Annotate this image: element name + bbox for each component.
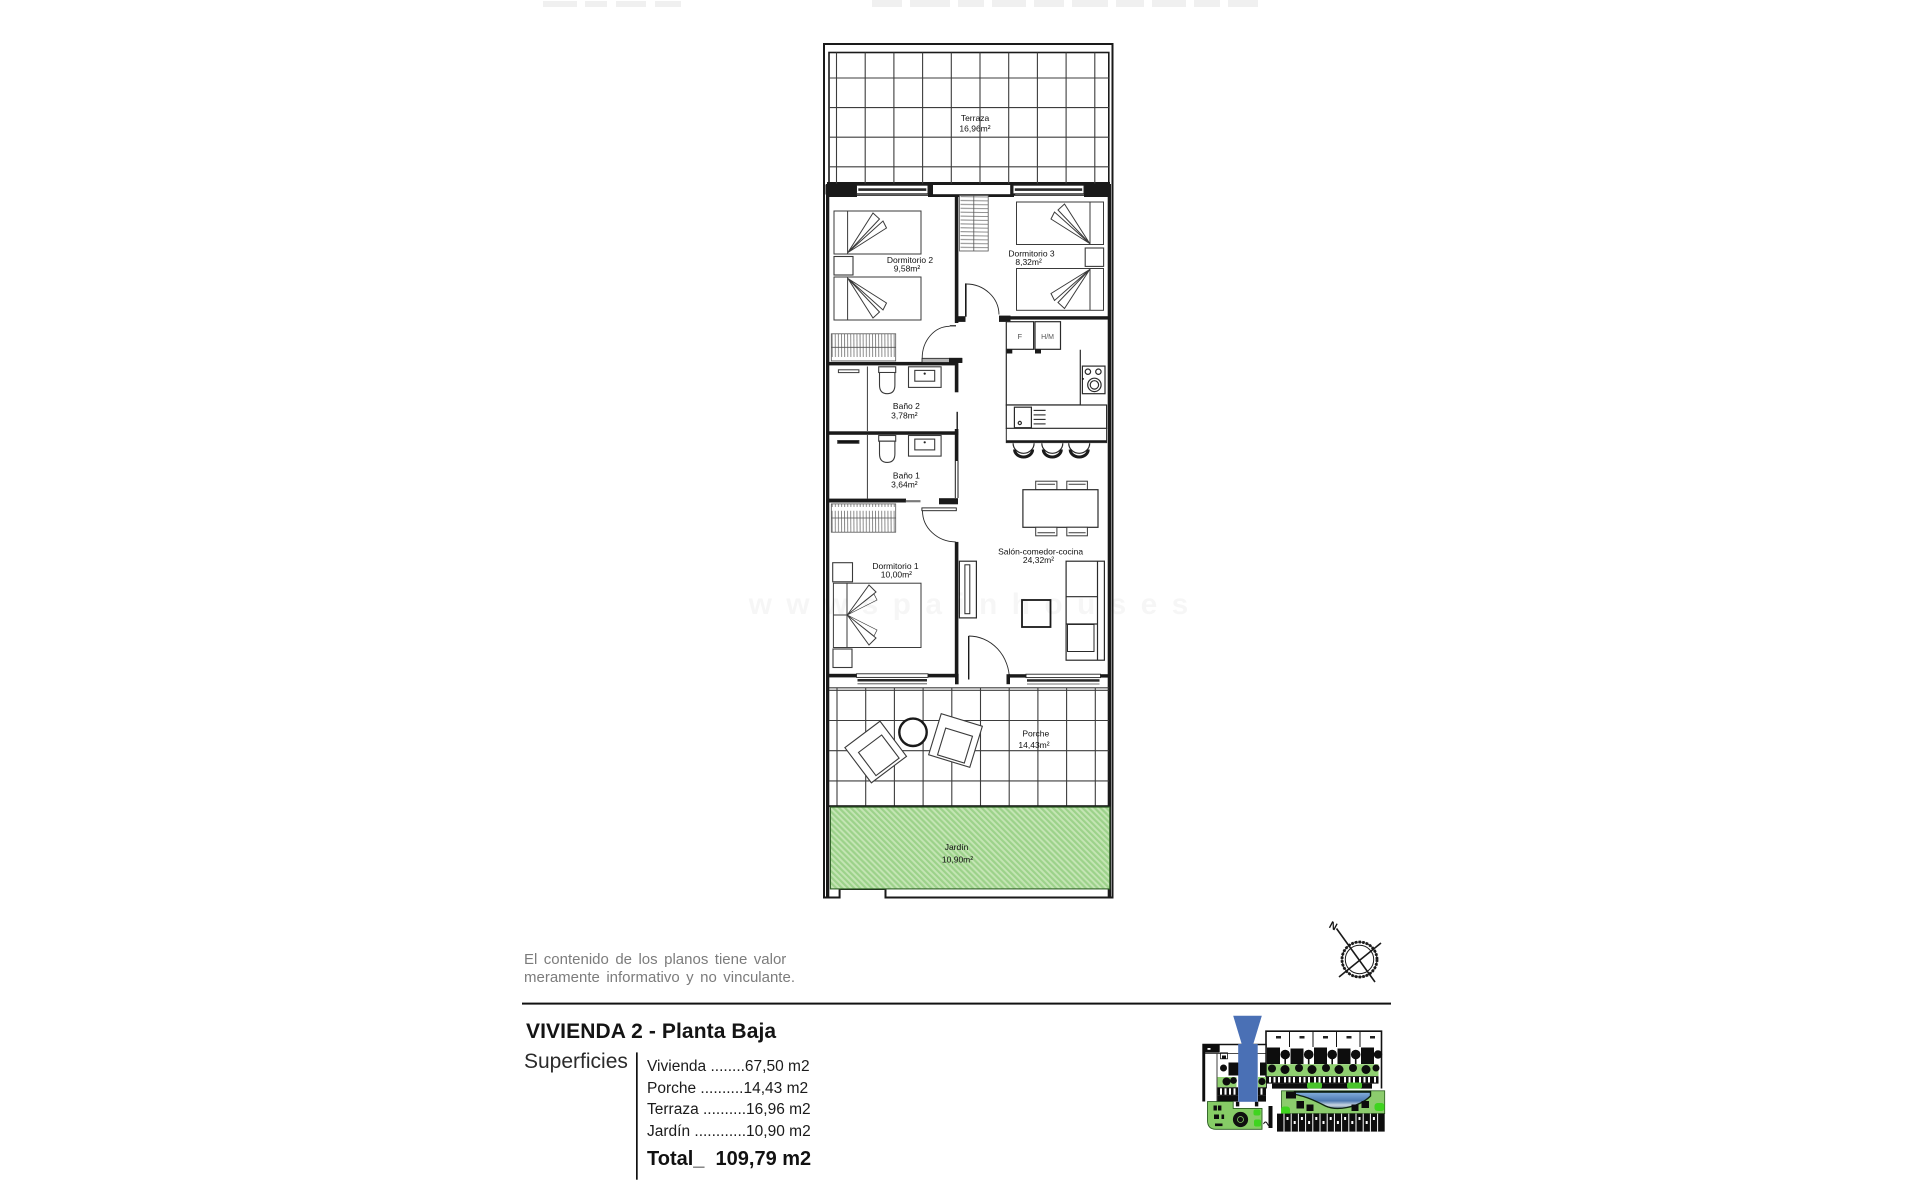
svg-text:w w w s p a i n h o u s e s: w w w s p a i n h o u s e s — [748, 588, 1192, 621]
svg-text:Terraza: Terraza — [961, 113, 990, 123]
svg-text:N: N — [1327, 919, 1339, 933]
svg-text:10,00m²: 10,00m² — [881, 570, 912, 580]
svg-text:Porche: Porche — [1022, 729, 1049, 739]
svg-text:H/M: H/M — [1041, 334, 1054, 341]
svg-text:8,32m²: 8,32m² — [1015, 257, 1042, 267]
svg-text:16,96m²: 16,96m² — [959, 124, 990, 134]
svg-text:24,32m²: 24,32m² — [1023, 555, 1054, 565]
svg-text:3,78m²: 3,78m² — [891, 410, 918, 420]
svg-text:10,90m²: 10,90m² — [942, 855, 973, 865]
svg-text:9,58m²: 9,58m² — [894, 264, 921, 274]
svg-text:Jardín: Jardín — [945, 842, 969, 852]
svg-text:F: F — [1018, 332, 1023, 341]
svg-text:14,43m²: 14,43m² — [1018, 740, 1049, 750]
svg-text:3,64m²: 3,64m² — [891, 480, 918, 490]
